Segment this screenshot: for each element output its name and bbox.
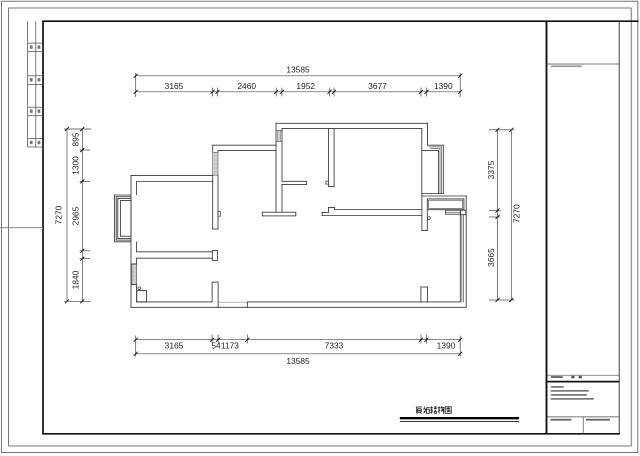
svg-text:7333: 7333 [325, 341, 344, 351]
svg-text:1173: 1173 [221, 341, 239, 351]
svg-text:2965: 2965 [71, 206, 81, 225]
svg-text:3165: 3165 [165, 341, 184, 351]
svg-text:3677: 3677 [368, 81, 387, 91]
svg-text:7270: 7270 [512, 204, 522, 223]
svg-text:13585: 13585 [286, 65, 310, 75]
svg-text:7270: 7270 [54, 205, 64, 224]
svg-text:895: 895 [71, 132, 81, 146]
svg-text:1840: 1840 [71, 270, 81, 289]
svg-text:3375: 3375 [486, 160, 496, 179]
svg-text:13585: 13585 [286, 356, 310, 366]
svg-text:2460: 2460 [237, 81, 256, 91]
svg-text:3165: 3165 [165, 81, 184, 91]
svg-text:54: 54 [211, 341, 221, 351]
svg-text:1952: 1952 [296, 81, 315, 91]
svg-text:3665: 3665 [486, 248, 496, 267]
svg-text:1390: 1390 [437, 341, 456, 351]
svg-text:1300: 1300 [71, 156, 81, 175]
svg-text:1390: 1390 [434, 81, 453, 91]
